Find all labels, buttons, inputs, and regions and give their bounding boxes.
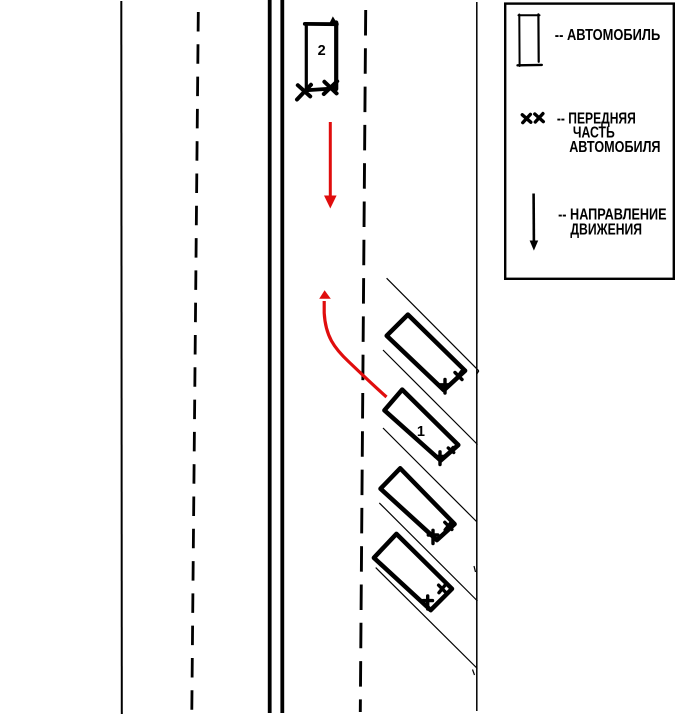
svg-text:-- АВТОМОБИЛЬ: -- АВТОМОБИЛЬ (555, 27, 660, 44)
svg-text:ДВИЖЕНИЯ: ДВИЖЕНИЯ (570, 221, 642, 238)
svg-text:2: 2 (318, 43, 326, 59)
svg-text:АВТОМОБИЛЯ: АВТОМОБИЛЯ (569, 139, 660, 156)
svg-text:1: 1 (417, 424, 425, 440)
